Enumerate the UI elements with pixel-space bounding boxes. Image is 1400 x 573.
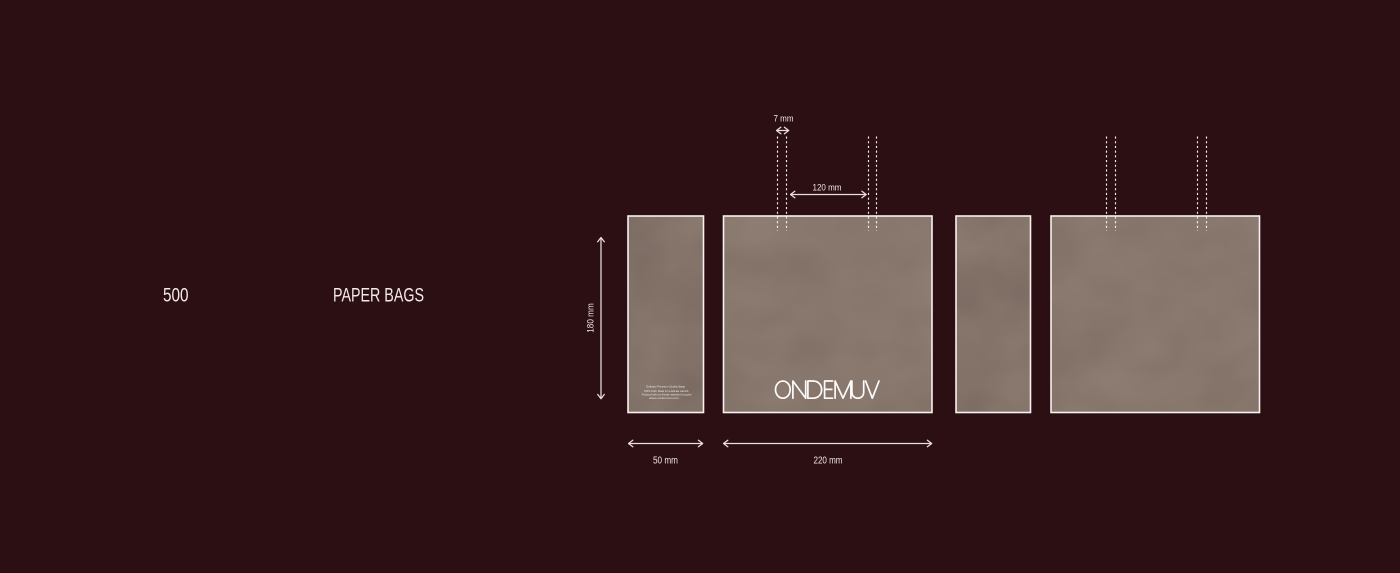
svg-text:50 mm: 50 mm — [653, 455, 678, 466]
svg-text:180 mm: 180 mm — [586, 303, 597, 333]
svg-text:PAPER BAGS: PAPER BAGS — [333, 286, 424, 307]
svg-text:www.ondemuv.com: www.ondemuv.com — [649, 396, 679, 400]
svg-text:7 mm: 7 mm — [774, 114, 794, 125]
svg-text:120 mm: 120 mm — [813, 183, 842, 194]
svg-text:500: 500 — [163, 286, 189, 307]
svg-text:220 mm: 220 mm — [814, 455, 843, 466]
